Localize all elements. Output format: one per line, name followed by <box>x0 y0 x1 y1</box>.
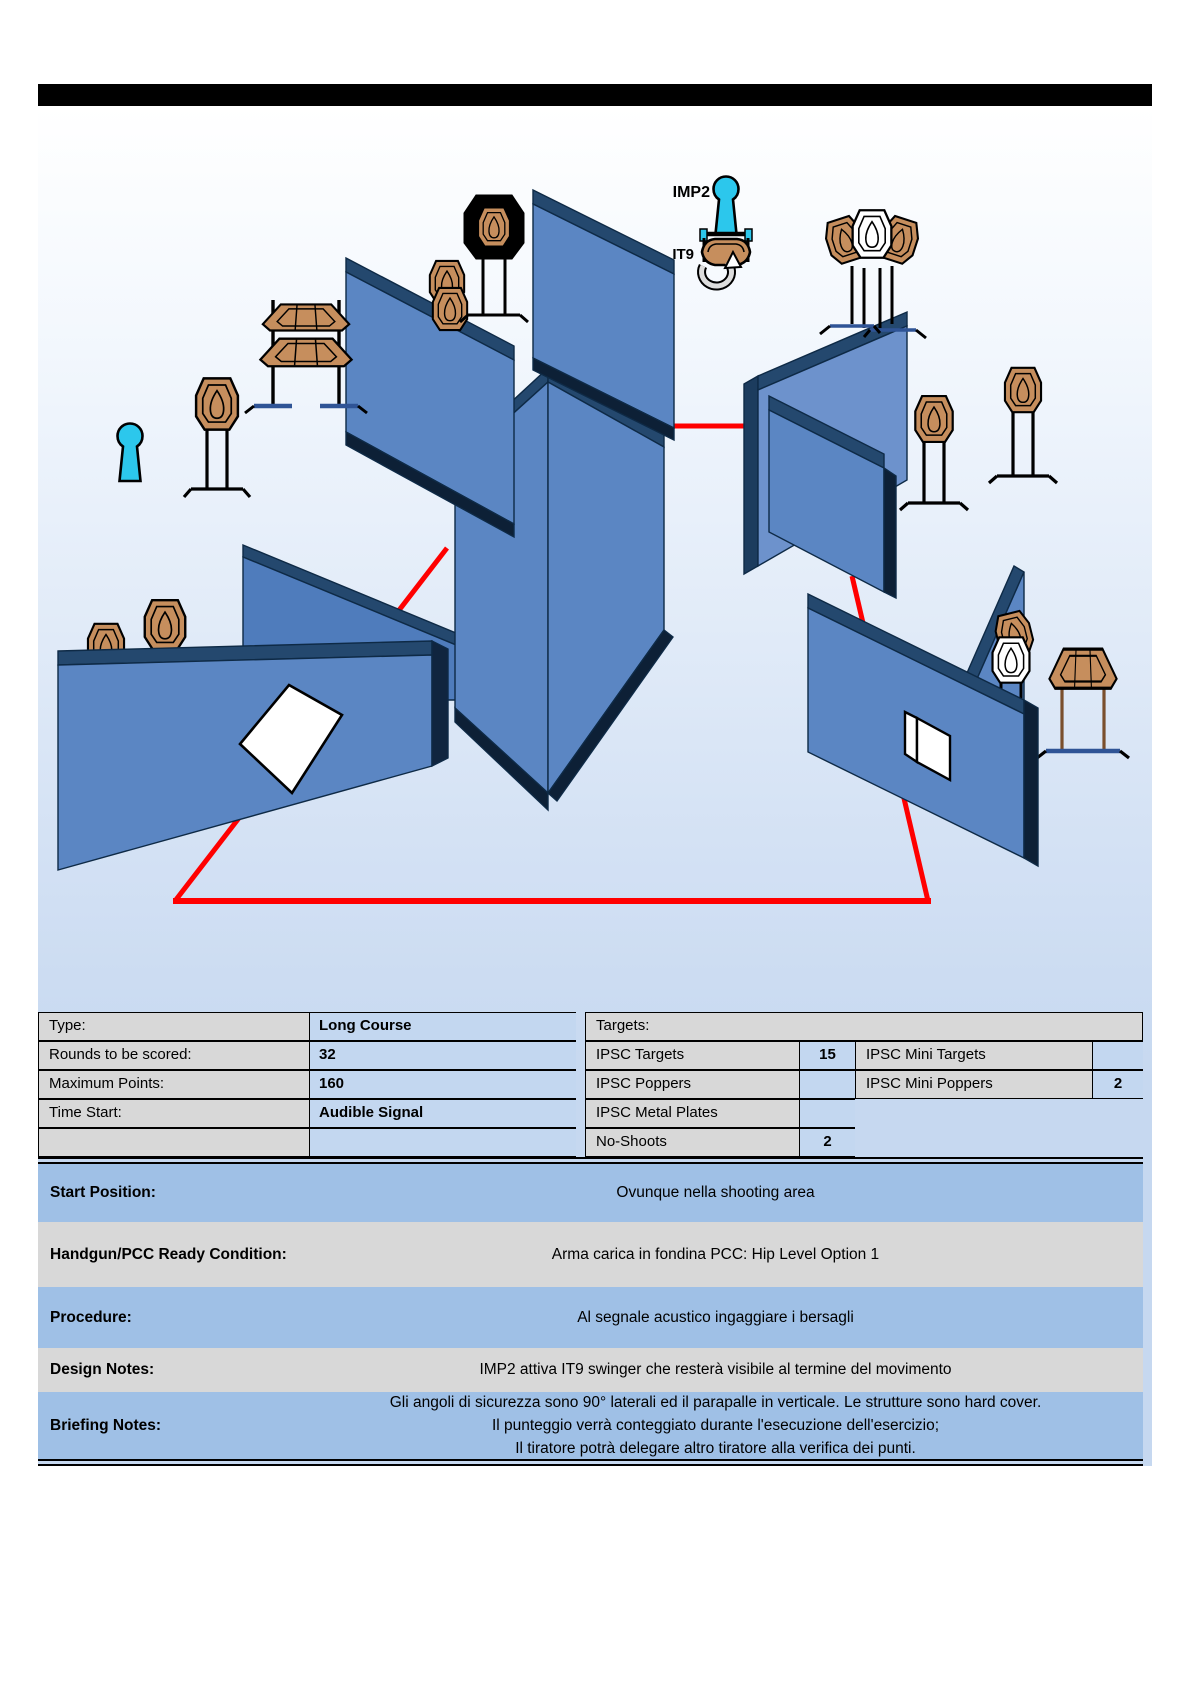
briefing-line: Il tiratore potrà delegare altro tirator… <box>515 1437 916 1460</box>
ipsc-target <box>145 600 185 650</box>
type-value: Long Course <box>310 1012 576 1041</box>
ready-condition-label: Handgun/PCC Ready Condition: <box>50 1222 300 1287</box>
briefing-line: Il punteggio verrà conteggiato durante l… <box>492 1414 939 1437</box>
stage-diagram: IMP2 IT9 <box>38 106 1152 1012</box>
section-divider-top <box>38 1157 1143 1164</box>
mini-poppers-count: 2 <box>1093 1070 1143 1099</box>
stage-info-table: Type: Long Course Rounds to be scored: 3… <box>38 1012 1152 1157</box>
no-shoot-target <box>993 637 1030 682</box>
poppers-count <box>800 1070 855 1099</box>
wall-right-upper <box>744 376 758 574</box>
wall-port <box>905 712 917 762</box>
content-area: IMP2 IT9 Type: Long Course Rounds to be … <box>38 106 1152 1466</box>
design-notes-label: Design Notes: <box>50 1348 300 1392</box>
points-value: 160 <box>310 1070 576 1099</box>
it9-swinger <box>700 229 752 265</box>
mini-targets-count <box>1093 1041 1143 1070</box>
start-position-row: Start Position: Ovunque nella shooting a… <box>38 1164 1143 1222</box>
ipsc-target <box>196 378 238 429</box>
targets-header: Targets: <box>585 1012 1143 1041</box>
empty-label-cell <box>38 1128 310 1157</box>
briefing-notes-label: Briefing Notes: <box>50 1392 300 1459</box>
section-divider-bottom <box>38 1459 1143 1466</box>
start-position-label: Start Position: <box>50 1164 300 1222</box>
metal-plates-label: IPSC Metal Plates <box>585 1099 800 1128</box>
rounds-label: Rounds to be scored: <box>38 1041 310 1070</box>
no-shoots-count: 2 <box>800 1128 855 1157</box>
empty-value-cell <box>310 1128 576 1157</box>
metal-plates-count <box>800 1099 855 1128</box>
mini-targets-label: IPSC Mini Targets <box>855 1041 1093 1070</box>
triple-target-stand <box>820 210 926 338</box>
ipsc-turned-target <box>263 304 349 330</box>
ipsc-target <box>915 396 952 442</box>
imp2-label: IMP2 <box>673 184 710 201</box>
points-label: Maximum Points: <box>38 1070 310 1099</box>
ipsc-target <box>1005 368 1041 412</box>
procedure-value: Al segnale acustico ingaggiare i bersagl… <box>288 1287 1143 1348</box>
ipsc-turned-target <box>1049 649 1116 688</box>
time-start-value: Audible Signal <box>310 1099 576 1128</box>
briefing-line: Gli angoli di sicurezza sono 90° lateral… <box>390 1391 1042 1414</box>
ipsc-target <box>478 208 510 247</box>
it9-label: IT9 <box>672 246 694 263</box>
procedure-row: Procedure: Al segnale acustico ingaggiar… <box>38 1287 1143 1348</box>
briefing-notes-row: Briefing Notes: Gli angoli di sicurezza … <box>38 1392 1143 1459</box>
title-bar <box>38 84 1152 106</box>
rounds-value: 32 <box>310 1041 576 1070</box>
ipsc-target <box>433 288 467 330</box>
poppers-label: IPSC Poppers <box>585 1070 800 1099</box>
no-shoot-target <box>853 210 892 258</box>
design-notes-row: Design Notes: IMP2 attiva IT9 swinger ch… <box>38 1348 1143 1392</box>
procedure-label: Procedure: <box>50 1287 300 1348</box>
no-shoots-label: No-Shoots <box>585 1128 800 1157</box>
mini-popper <box>118 424 143 482</box>
imp2-popper <box>714 177 739 235</box>
ready-condition-row: Handgun/PCC Ready Condition: Arma carica… <box>38 1222 1143 1287</box>
start-position-value: Ovunque nella shooting area <box>288 1164 1143 1222</box>
type-label: Type: <box>38 1012 310 1041</box>
ready-condition-value: Arma carica in fondina PCC: Hip Level Op… <box>288 1222 1143 1287</box>
briefing-notes-value: Gli angoli di sicurezza sono 90° lateral… <box>288 1392 1143 1459</box>
stage-briefing-page: IMP2 IT9 Type: Long Course Rounds to be … <box>0 0 1190 1684</box>
design-notes-value: IMP2 attiva IT9 swinger che resterà visi… <box>288 1348 1143 1392</box>
ipsc-targets-count: 15 <box>800 1041 855 1070</box>
time-start-label: Time Start: <box>38 1099 310 1128</box>
mini-poppers-label: IPSC Mini Poppers <box>855 1070 1093 1099</box>
ipsc-targets-label: IPSC Targets <box>585 1041 800 1070</box>
